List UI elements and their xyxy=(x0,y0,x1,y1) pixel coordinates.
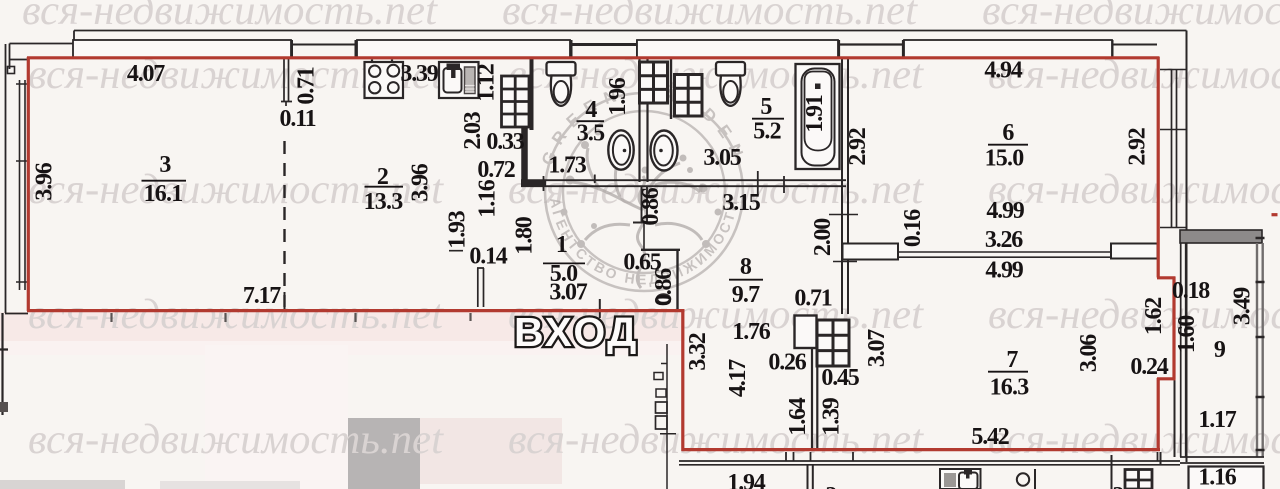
svg-text:4.99: 4.99 xyxy=(985,258,1023,284)
svg-text:9.7: 9.7 xyxy=(732,282,760,308)
svg-text:3.39: 3.39 xyxy=(400,61,438,87)
svg-text:3.15: 3.15 xyxy=(722,190,760,216)
svg-text:7.17: 7.17 xyxy=(243,283,281,309)
svg-text:2.92: 2.92 xyxy=(1125,128,1151,165)
svg-text:3.07: 3.07 xyxy=(864,329,890,367)
svg-text:ВХОД: ВХОД xyxy=(514,309,639,355)
svg-text:1.64: 1.64 xyxy=(785,397,811,435)
svg-text:13.3: 13.3 xyxy=(364,189,404,215)
svg-text:5.42: 5.42 xyxy=(971,424,1008,450)
svg-text:1.76: 1.76 xyxy=(732,319,770,345)
svg-text:0.33: 0.33 xyxy=(486,129,524,155)
svg-text:2: 2 xyxy=(825,483,836,489)
svg-text:3.06: 3.06 xyxy=(1076,334,1102,372)
svg-text:4.99: 4.99 xyxy=(986,198,1024,224)
svg-text:3.26: 3.26 xyxy=(985,227,1023,253)
svg-text:1.96: 1.96 xyxy=(605,77,631,115)
svg-text:6: 6 xyxy=(1002,120,1014,146)
svg-text:1.16: 1.16 xyxy=(475,179,501,217)
svg-text:5: 5 xyxy=(760,94,772,120)
svg-text:2.00: 2.00 xyxy=(810,218,836,256)
svg-text:вся-недвижимость.net: вся-недвижимость.net xyxy=(28,417,444,463)
svg-text:3.05: 3.05 xyxy=(703,145,741,171)
svg-text:1.80: 1.80 xyxy=(512,216,538,254)
svg-text:8: 8 xyxy=(740,254,752,280)
svg-text:0.71: 0.71 xyxy=(294,67,320,104)
svg-text:вся-недвижимость.net: вся-недвижимость.net xyxy=(982,0,1280,34)
svg-text:2.92: 2.92 xyxy=(845,128,871,165)
svg-text:1.62: 1.62 xyxy=(1141,298,1167,335)
svg-text:5.2: 5.2 xyxy=(753,119,781,145)
svg-text:1.91: 1.91 xyxy=(802,95,828,132)
svg-text:3.07: 3.07 xyxy=(549,280,587,306)
svg-text:1.17: 1.17 xyxy=(1198,407,1236,433)
svg-text:1.94: 1.94 xyxy=(727,470,765,489)
svg-text:1.16: 1.16 xyxy=(1198,465,1236,489)
svg-text:3.32: 3.32 xyxy=(685,333,711,370)
svg-text:0.24: 0.24 xyxy=(1130,354,1168,380)
svg-text:3.96: 3.96 xyxy=(32,162,58,200)
svg-text:4: 4 xyxy=(585,97,597,123)
svg-text:3.49: 3.49 xyxy=(1230,287,1256,325)
svg-text:2: 2 xyxy=(1112,483,1123,489)
svg-text:0.86: 0.86 xyxy=(651,268,677,306)
svg-text:16.1: 16.1 xyxy=(144,181,183,207)
svg-text:2.03: 2.03 xyxy=(460,111,486,149)
svg-text:1.12: 1.12 xyxy=(474,64,500,101)
svg-text:1.93: 1.93 xyxy=(445,210,471,248)
svg-text:вся-недвижимость.net: вся-недвижимость.net xyxy=(502,0,918,34)
svg-text:4.94: 4.94 xyxy=(984,58,1022,84)
svg-text:15.0: 15.0 xyxy=(985,146,1025,172)
svg-text:1: 1 xyxy=(556,232,567,258)
svg-text:1.73: 1.73 xyxy=(548,153,586,179)
svg-text:3: 3 xyxy=(159,152,171,178)
svg-text:вся-недвижимость.net: вся-недвижимость.net xyxy=(508,417,924,463)
svg-text:16.3: 16.3 xyxy=(990,375,1030,401)
svg-text:3.5: 3.5 xyxy=(577,121,605,147)
svg-text:0.18: 0.18 xyxy=(1172,278,1210,304)
svg-text:0.16: 0.16 xyxy=(900,209,926,247)
svg-text:0.71: 0.71 xyxy=(794,286,831,312)
svg-text:0.86: 0.86 xyxy=(638,187,664,225)
svg-text:вся-недвижимость.net: вся-недвижимость.net xyxy=(988,417,1280,463)
svg-text:0.72: 0.72 xyxy=(477,157,514,183)
svg-text:7: 7 xyxy=(1006,347,1018,373)
svg-text:1.39: 1.39 xyxy=(819,397,845,435)
svg-text:0.11: 0.11 xyxy=(280,106,316,132)
svg-text:0.45: 0.45 xyxy=(821,365,859,391)
svg-text:1.60: 1.60 xyxy=(1174,315,1200,353)
svg-text:0.26: 0.26 xyxy=(768,350,806,376)
svg-text:9: 9 xyxy=(1214,337,1226,363)
svg-text:3.96: 3.96 xyxy=(408,163,434,201)
svg-text:вся-недвижимость.net: вся-недвижимость.net xyxy=(988,167,1280,213)
svg-text:вся-недвижимость.net: вся-недвижимость.net xyxy=(22,0,438,34)
svg-text:4.07: 4.07 xyxy=(127,61,165,87)
svg-text:вся-недвижимость.net: вся-недвижимость.net xyxy=(28,292,444,338)
svg-text:4.17: 4.17 xyxy=(725,359,751,397)
svg-text:0.14: 0.14 xyxy=(469,244,507,270)
